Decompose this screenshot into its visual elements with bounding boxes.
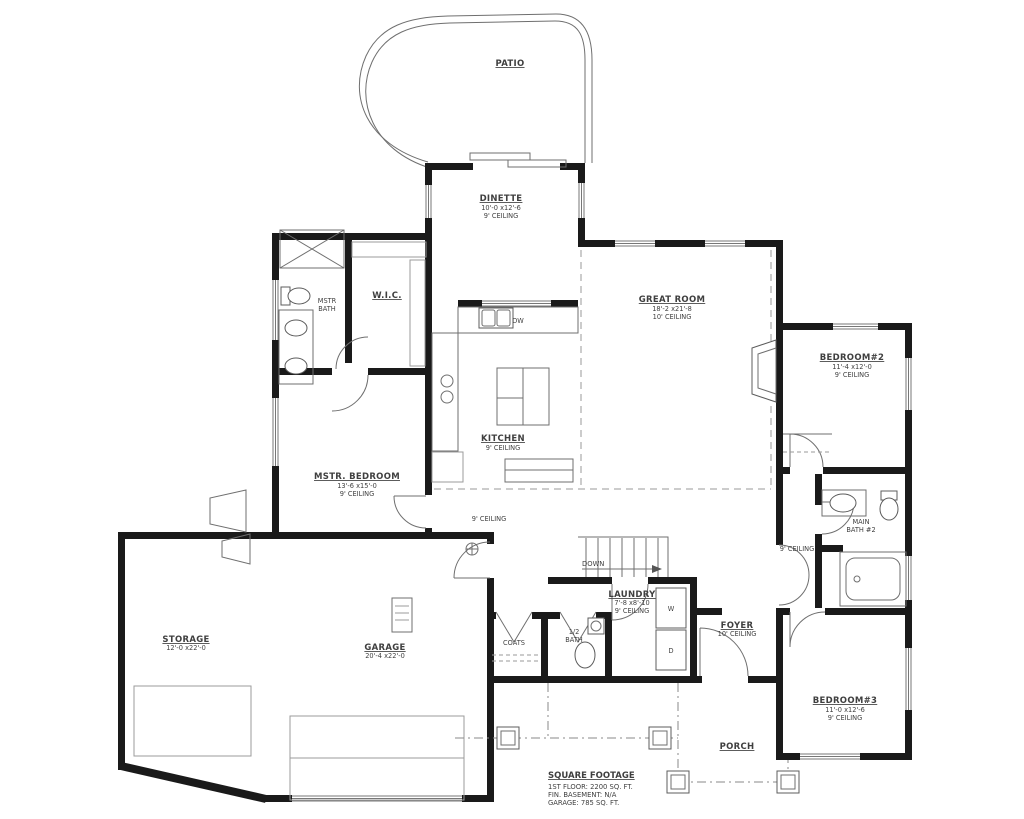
storage-dims: 12'-0 x22'-0: [166, 644, 206, 652]
great-room-ceiling: 10' CEILING: [653, 313, 692, 321]
pantry: [432, 452, 463, 482]
kitchen-counter: [432, 333, 458, 451]
porch-column-icon: [497, 727, 799, 793]
patio-outline: [359, 14, 592, 168]
floor-plan-drawing: PATIO DINETTE 10'-0 x12'-6 9' CEILING GR…: [0, 0, 1024, 819]
garage-elements: [134, 598, 464, 800]
toilet-icon: [575, 642, 595, 668]
wic-shelving: [352, 242, 426, 257]
sink-icon: [830, 494, 856, 512]
left-exterior-bays: [210, 490, 250, 564]
sink-icon: [285, 358, 307, 374]
cooktop-burner-icon: [441, 375, 453, 387]
great-room-label: GREAT ROOM: [639, 295, 705, 305]
master-door-arc: [394, 496, 426, 528]
bedroom2-ceiling: 9' CEILING: [835, 371, 869, 379]
hall-ceiling-label: 9' CEILING: [780, 545, 814, 553]
square-footage-basement: FIN. BASEMENT: N/A: [548, 791, 617, 799]
foyer-ceiling: 10' CEILING: [718, 630, 757, 638]
master-bath-label: MSTR: [318, 297, 337, 305]
porch-label: PORCH: [720, 742, 755, 752]
bedroom3-label: BEDROOM#3: [813, 696, 878, 706]
kitchen-fixtures: [432, 307, 578, 482]
bedroom3-door-arc: [790, 612, 825, 647]
coats-label: COATS: [503, 639, 525, 647]
bedroom2-dims: 11'-4 x12'-0: [832, 363, 872, 371]
ceiling-break-lines: [434, 250, 771, 489]
master-bath-fixtures: [279, 230, 426, 384]
hall-ceiling-label: 9' CEILING: [472, 515, 506, 523]
square-footage-title: SQUARE FOOTAGE: [548, 771, 635, 781]
master-bedroom-ceiling: 9' CEILING: [340, 490, 374, 498]
dryer-label: D: [668, 647, 673, 655]
master-bedroom-dims: 13'-6 x15'-0: [337, 482, 377, 490]
stairs: [578, 537, 668, 577]
sink-icon: [588, 618, 604, 634]
stairs-down-label: DOWN: [582, 560, 604, 568]
garage-pad: [134, 686, 251, 756]
sink-icon: [285, 320, 307, 336]
laundry-dims: 7'-8 x8'-10: [614, 599, 649, 607]
main-bath-fixtures: [783, 434, 906, 606]
floor-plan-page: PATIO DINETTE 10'-0 x12'-6 9' CEILING GR…: [0, 0, 1024, 819]
kitchen-sink-icon: [479, 308, 513, 328]
wic-shelving: [410, 260, 425, 366]
bedroom3-ceiling: 9' CEILING: [828, 714, 862, 722]
washer-label: W: [668, 605, 675, 613]
laundry-fixtures: [656, 588, 686, 670]
garage-angled-wall: [121, 766, 266, 799]
master-bedroom-label: MSTR. BEDROOM: [314, 472, 400, 482]
half-bath-label: 1/2: [569, 628, 580, 636]
bedroom2-label: BEDROOM#2: [820, 353, 885, 363]
down-arrow-icon: [652, 565, 662, 573]
fireplace-icon: [752, 340, 776, 402]
ceiling-fixture-icon: [466, 543, 478, 555]
dinette-label: DINETTE: [480, 194, 523, 204]
great-room-dims: 18'-2 x21'-8: [652, 305, 692, 313]
square-footage-first-floor: 1ST FLOOR: 2200 SQ. FT.: [548, 783, 633, 791]
bedroom2-door-arc: [790, 434, 823, 467]
coats-shelf: [492, 655, 538, 661]
svg-text:BATH #2: BATH #2: [846, 526, 875, 534]
kitchen-label: KITCHEN: [481, 434, 525, 444]
sliding-door-icon: [470, 153, 530, 160]
master-bath-door-arc: [332, 375, 368, 411]
bedroom3-dims: 11'-0 x12'-6: [825, 706, 865, 714]
dinette-ceiling: 9' CEILING: [484, 212, 518, 220]
coats-bifold-icon: [496, 612, 532, 642]
garage-dims: 20'-4 x22'-0: [365, 652, 405, 660]
svg-text:BATH: BATH: [565, 636, 583, 644]
wic-label: W.I.C.: [372, 291, 402, 301]
main-bath-label: MAIN: [852, 518, 869, 526]
patio-label: PATIO: [495, 59, 524, 69]
kitchen-ceiling: 9' CEILING: [486, 444, 520, 452]
laundry-ceiling: 9' CEILING: [615, 607, 649, 615]
cooktop-burner-icon: [441, 391, 453, 403]
dinette-dims: 10'-0 x12'-6: [481, 204, 521, 212]
svg-text:BATH: BATH: [318, 305, 336, 313]
square-footage-garage: GARAGE: 785 SQ. FT.: [548, 799, 619, 807]
hall-closet-doors-arc: [779, 545, 809, 605]
square-footage-block: SQUARE FOOTAGE 1ST FLOOR: 2200 SQ. FT. F…: [548, 771, 635, 807]
utility-box: [392, 598, 412, 632]
dishwasher-label: DW: [512, 317, 524, 325]
